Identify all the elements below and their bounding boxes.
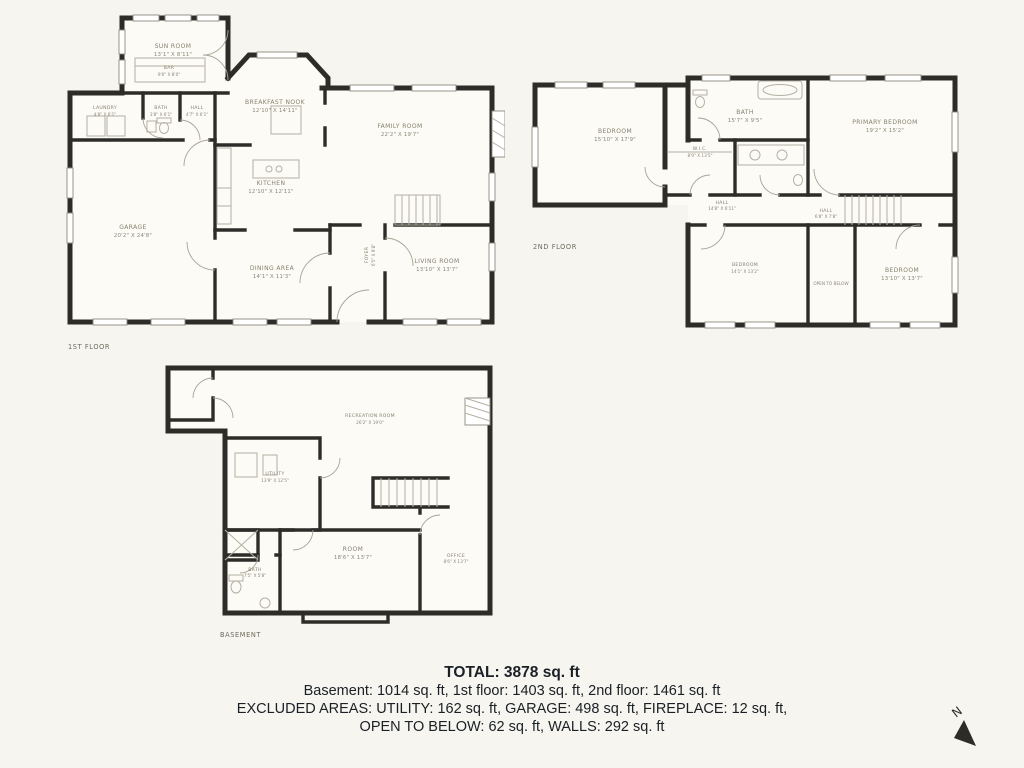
room-label-wic: W.I.C. [693, 146, 708, 152]
room-dims-utility: 13'9" X 12'5" [261, 478, 289, 483]
room-label-room: ROOM [343, 546, 363, 553]
summary-total: TOTAL: 3878 sq. ft [0, 663, 1024, 682]
room-dims-hall1: 4'7" X 6'1" [186, 112, 208, 117]
room-label-bar: BAR [164, 65, 175, 71]
floor-title-first: 1ST FLOOR [68, 343, 110, 351]
room-label-hall1: HALL [191, 105, 204, 111]
room-label-dining: DINING AREA [250, 265, 295, 272]
room-dims-family: 22'2" X 19'7" [381, 132, 419, 138]
second-floor-plan: BEDROOM 15'10" X 17'9" BATH 15'7" X 9'5"… [530, 72, 960, 334]
basement-plan: RECREATION ROOM 26'2" X 19'0" UTILITY 13… [163, 363, 493, 648]
north-arrow-head [954, 720, 976, 746]
room-label-bath1: BATH [154, 105, 167, 111]
room-dims-sunroom: 13'1" X 8'11" [154, 52, 192, 58]
room-label-bedroom-bl: BEDROOM [732, 262, 758, 268]
room-label-laundry: LAUNDRY [93, 105, 117, 111]
summary-excluded-1: EXCLUDED AREAS: UTILITY: 162 sq. ft, GAR… [0, 700, 1024, 718]
first-floor-plan: SUN ROOM 13'1" X 8'11" BAR 9'0" X 8'0" L… [65, 8, 505, 358]
room-dims-office: 8'6" X 13'7" [443, 559, 468, 564]
room-label-bedroom-br: BEDROOM [885, 267, 919, 274]
room-dims-bar: 9'0" X 8'0" [158, 72, 180, 77]
north-arrow: N [942, 700, 992, 755]
room-label-family: FAMILY ROOM [377, 123, 422, 130]
room-dims-hall-left: 14'8" X 6'11" [708, 206, 736, 211]
room-label-bath2: BATH [736, 109, 754, 116]
room-dims-dining: 14'1" X 11'3" [253, 274, 291, 280]
room-dims-bedroom-bl: 14'1" X 13'2" [731, 269, 759, 274]
room-label-sunroom: SUN ROOM [155, 43, 192, 50]
room-label-primary: PRIMARY BEDROOM [852, 119, 918, 126]
room-dims-primary: 19'2" X 15'2" [866, 128, 904, 134]
room-label-bedroom-tl: BEDROOM [598, 128, 632, 135]
area-summary: TOTAL: 3878 sq. ft Basement: 1014 sq. ft… [0, 663, 1024, 736]
room-label-foyer: FOYER [364, 246, 370, 263]
room-dims-laundry: 4'8" X 6'1" [94, 112, 116, 117]
room-dims-garage: 20'2" X 24'8" [114, 233, 152, 239]
room-label-living: LIVING ROOM [414, 258, 459, 265]
summary-floors: Basement: 1014 sq. ft, 1st floor: 1403 s… [0, 682, 1024, 700]
room-dims-hall-right: 6'8" X 7'8" [815, 214, 837, 219]
room-dims-bath-bsmt: 7'5" X 5'8" [244, 573, 266, 578]
floor-title-second: 2ND FLOOR [533, 243, 577, 251]
room-dims-bedroom-tl: 15'10" X 17'9" [594, 137, 636, 143]
room-dims-foyer: 6'5" X 9'8" [371, 244, 376, 266]
room-dims-bath1: 3'8" X 6'1" [150, 112, 172, 117]
room-dims-wic: 8'9" X 13'5" [687, 153, 712, 158]
room-label-kitchen: KITCHEN [257, 180, 286, 187]
room-dims-bath2: 15'7" X 9'5" [728, 118, 763, 124]
floor-plan-sheet: SUN ROOM 13'1" X 8'11" BAR 9'0" X 8'0" L… [0, 0, 1024, 768]
room-dims-living: 13'10" X 13'7" [416, 267, 458, 273]
room-label-garage: GARAGE [119, 224, 147, 231]
room-dims-kitchen: 12'10" X 12'11" [248, 189, 293, 195]
north-label: N [949, 704, 965, 721]
room-label-breakfast: BREAKFAST NOOK [245, 99, 306, 106]
summary-excluded-2: OPEN TO BELOW: 62 sq. ft, WALLS: 292 sq.… [0, 718, 1024, 736]
room-dims-breakfast: 12'10" X 14'11" [252, 108, 297, 114]
room-label-utility: UTILITY [265, 471, 284, 477]
room-dims-room: 18'6" X 13'7" [334, 555, 372, 561]
floor-title-basement: BASEMENT [220, 631, 261, 639]
room-dims-recreation: 26'2" X 19'0" [356, 420, 384, 425]
room-dims-bedroom-br: 13'10" X 13'7" [881, 276, 923, 282]
room-label-open-below: OPEN TO BELOW [813, 281, 848, 286]
room-label-recreation: RECREATION ROOM [345, 413, 395, 419]
